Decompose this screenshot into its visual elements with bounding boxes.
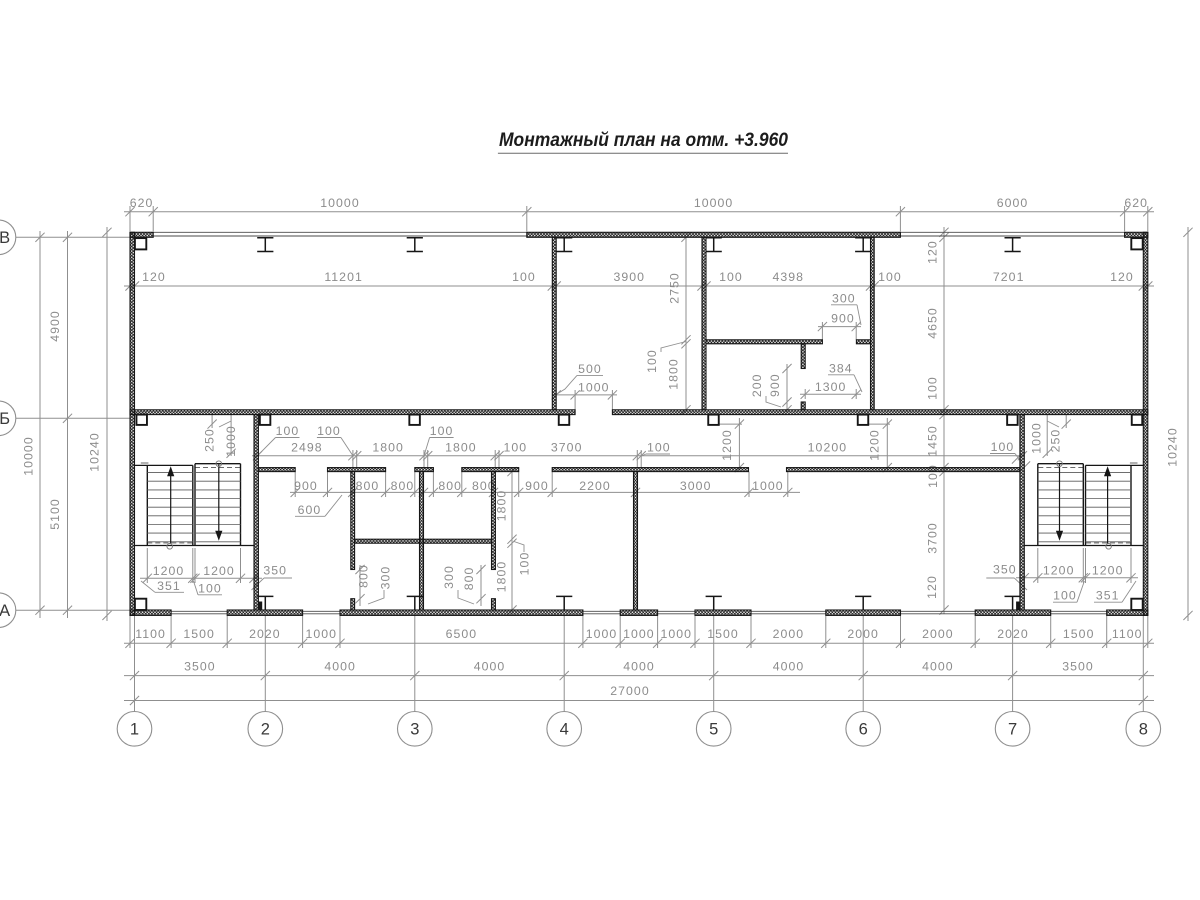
svg-text:6: 6 bbox=[859, 721, 868, 739]
svg-text:Монтажный план на отм. +3.960: Монтажный план на отм. +3.960 bbox=[499, 129, 788, 151]
svg-text:4398: 4398 bbox=[773, 270, 805, 284]
svg-text:27000: 27000 bbox=[610, 684, 649, 698]
svg-text:10240: 10240 bbox=[88, 432, 102, 471]
svg-text:620: 620 bbox=[130, 196, 154, 210]
svg-text:300: 300 bbox=[442, 565, 456, 589]
svg-text:100: 100 bbox=[878, 270, 902, 284]
svg-text:3500: 3500 bbox=[1062, 659, 1094, 673]
svg-text:300: 300 bbox=[832, 291, 856, 305]
svg-text:800: 800 bbox=[438, 479, 462, 493]
svg-text:2498: 2498 bbox=[291, 441, 323, 455]
svg-text:800: 800 bbox=[357, 564, 371, 588]
svg-text:5: 5 bbox=[709, 721, 718, 739]
svg-text:120: 120 bbox=[925, 575, 939, 599]
svg-text:5100: 5100 bbox=[48, 498, 62, 530]
svg-text:2000: 2000 bbox=[922, 627, 954, 641]
svg-text:1800: 1800 bbox=[445, 441, 477, 455]
svg-text:6000: 6000 bbox=[997, 196, 1029, 210]
svg-text:100: 100 bbox=[198, 581, 222, 595]
svg-text:120: 120 bbox=[142, 270, 166, 284]
svg-text:350: 350 bbox=[993, 563, 1017, 577]
svg-text:4: 4 bbox=[560, 721, 569, 739]
svg-text:1450: 1450 bbox=[925, 425, 939, 457]
svg-text:2750: 2750 bbox=[668, 272, 682, 304]
svg-text:1000: 1000 bbox=[224, 425, 238, 457]
svg-text:1800: 1800 bbox=[372, 441, 404, 455]
svg-text:100: 100 bbox=[430, 424, 454, 438]
svg-text:10000: 10000 bbox=[22, 436, 36, 475]
svg-text:1500: 1500 bbox=[183, 627, 215, 641]
svg-text:100: 100 bbox=[503, 441, 527, 455]
svg-text:1200: 1200 bbox=[1092, 563, 1124, 577]
svg-text:1100: 1100 bbox=[135, 627, 166, 641]
svg-text:350: 350 bbox=[263, 564, 287, 578]
svg-text:351: 351 bbox=[157, 579, 181, 593]
svg-text:7201: 7201 bbox=[993, 270, 1025, 284]
svg-text:250: 250 bbox=[202, 428, 216, 452]
svg-text:3900: 3900 bbox=[614, 270, 646, 284]
svg-text:200: 200 bbox=[750, 373, 764, 397]
svg-text:900: 900 bbox=[768, 373, 782, 397]
svg-text:250: 250 bbox=[1048, 429, 1062, 453]
svg-text:1800: 1800 bbox=[495, 561, 509, 593]
svg-text:100: 100 bbox=[991, 440, 1015, 454]
svg-text:10000: 10000 bbox=[694, 196, 733, 210]
svg-text:620: 620 bbox=[1124, 196, 1148, 210]
svg-text:3700: 3700 bbox=[551, 441, 583, 455]
svg-text:100: 100 bbox=[719, 270, 743, 284]
svg-text:100: 100 bbox=[517, 552, 531, 576]
svg-text:1000: 1000 bbox=[752, 479, 784, 493]
svg-text:800: 800 bbox=[356, 479, 380, 493]
svg-text:900: 900 bbox=[294, 479, 318, 493]
svg-text:1000: 1000 bbox=[1029, 422, 1043, 454]
svg-text:Б: Б bbox=[0, 410, 10, 428]
svg-text:4000: 4000 bbox=[324, 659, 356, 673]
svg-text:120: 120 bbox=[925, 240, 939, 264]
svg-text:2000: 2000 bbox=[773, 627, 805, 641]
svg-text:900: 900 bbox=[525, 479, 549, 493]
svg-text:4000: 4000 bbox=[474, 659, 506, 673]
svg-text:4650: 4650 bbox=[925, 307, 939, 339]
svg-text:120: 120 bbox=[1110, 270, 1134, 284]
svg-text:1200: 1200 bbox=[1043, 563, 1075, 577]
svg-text:1200: 1200 bbox=[203, 564, 235, 578]
svg-text:100: 100 bbox=[647, 441, 671, 455]
svg-text:1800: 1800 bbox=[495, 490, 509, 522]
svg-text:4000: 4000 bbox=[623, 659, 655, 673]
svg-text:1: 1 bbox=[130, 721, 139, 739]
svg-text:300: 300 bbox=[379, 566, 393, 590]
svg-text:100: 100 bbox=[645, 349, 659, 373]
svg-text:384: 384 bbox=[829, 361, 853, 375]
svg-text:2: 2 bbox=[261, 721, 270, 739]
svg-text:В: В bbox=[0, 229, 10, 247]
svg-text:1800: 1800 bbox=[667, 358, 681, 390]
svg-text:А: А bbox=[0, 602, 10, 620]
svg-text:100: 100 bbox=[1053, 589, 1077, 603]
svg-text:2200: 2200 bbox=[579, 479, 611, 493]
svg-text:1000: 1000 bbox=[623, 627, 655, 641]
svg-text:3000: 3000 bbox=[680, 479, 712, 493]
svg-text:100: 100 bbox=[317, 424, 341, 438]
svg-text:1000: 1000 bbox=[661, 627, 693, 641]
svg-text:800: 800 bbox=[462, 567, 476, 591]
svg-text:1200: 1200 bbox=[867, 429, 881, 461]
svg-text:4000: 4000 bbox=[922, 659, 954, 673]
svg-text:100: 100 bbox=[276, 424, 300, 438]
svg-text:10240: 10240 bbox=[1166, 427, 1180, 466]
svg-text:1200: 1200 bbox=[153, 564, 185, 578]
svg-text:8: 8 bbox=[1139, 721, 1148, 739]
svg-text:351: 351 bbox=[1096, 589, 1120, 603]
svg-text:500: 500 bbox=[578, 362, 602, 376]
svg-text:1300: 1300 bbox=[815, 380, 847, 394]
svg-text:3700: 3700 bbox=[926, 522, 940, 554]
svg-text:1200: 1200 bbox=[720, 429, 734, 461]
svg-text:1000: 1000 bbox=[586, 627, 618, 641]
svg-text:1500: 1500 bbox=[707, 627, 739, 641]
svg-text:10200: 10200 bbox=[808, 441, 847, 455]
svg-text:1100: 1100 bbox=[1112, 627, 1143, 641]
svg-text:7: 7 bbox=[1008, 721, 1017, 739]
svg-text:10000: 10000 bbox=[320, 196, 359, 210]
svg-text:600: 600 bbox=[298, 503, 322, 517]
svg-text:6500: 6500 bbox=[446, 627, 478, 641]
svg-text:3: 3 bbox=[410, 721, 419, 739]
svg-text:800: 800 bbox=[391, 479, 415, 493]
svg-text:1000: 1000 bbox=[578, 381, 610, 395]
svg-text:100: 100 bbox=[512, 270, 536, 284]
svg-text:1500: 1500 bbox=[1063, 627, 1095, 641]
svg-text:100: 100 bbox=[925, 376, 939, 400]
svg-text:1000: 1000 bbox=[306, 627, 338, 641]
svg-text:4900: 4900 bbox=[48, 310, 62, 342]
svg-text:900: 900 bbox=[831, 311, 855, 325]
svg-text:4000: 4000 bbox=[773, 659, 805, 673]
svg-text:11201: 11201 bbox=[324, 270, 363, 284]
svg-text:3500: 3500 bbox=[184, 659, 216, 673]
